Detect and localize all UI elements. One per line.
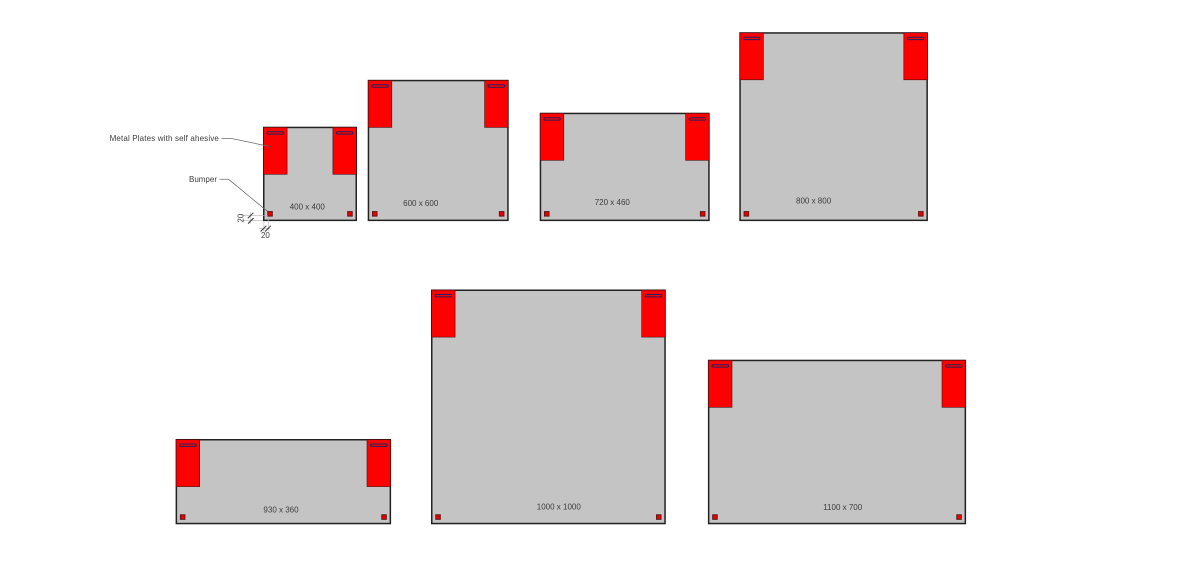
svg-text:1000 x 1000: 1000 x 1000 — [537, 503, 582, 512]
svg-text:400 x 400: 400 x 400 — [290, 203, 326, 212]
svg-text:720 x 460: 720 x 460 — [595, 198, 631, 207]
svg-text:20: 20 — [261, 231, 270, 240]
svg-text:Bumper: Bumper — [189, 175, 217, 184]
svg-text:800 x 800: 800 x 800 — [796, 197, 832, 206]
svg-text:930 x 360: 930 x 360 — [263, 506, 299, 515]
svg-text:1100 x 700: 1100 x 700 — [823, 503, 863, 512]
svg-text:Metal Plates with self ahesive: Metal Plates with self ahesive — [110, 134, 220, 143]
svg-text:600 x 600: 600 x 600 — [403, 199, 439, 208]
svg-text:20: 20 — [236, 213, 245, 222]
